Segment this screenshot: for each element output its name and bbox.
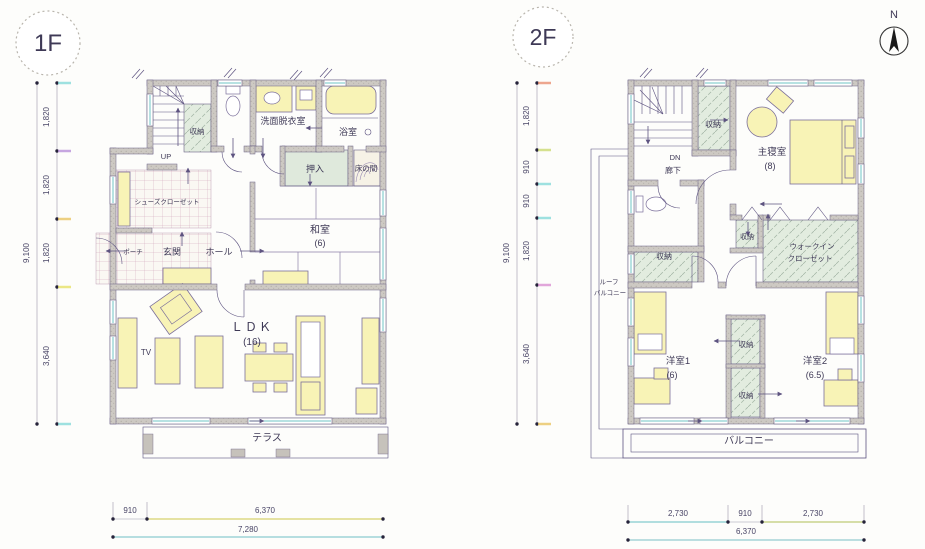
roof-balcony-2f	[591, 149, 628, 458]
room-label-storage-1f: 収納	[190, 126, 205, 136]
floor-plan-sheet: 1F	[0, 0, 925, 549]
kitchen-sink	[301, 322, 320, 377]
rug	[150, 284, 202, 335]
dim-bottom-seg-2f: 910	[738, 509, 752, 518]
master-bedroom-furniture-2f	[747, 87, 856, 184]
room-label-ldk-1f: ＬＤＫ	[231, 320, 273, 334]
desk	[634, 378, 670, 404]
dim-bottom-seg-1f: 910	[123, 506, 137, 515]
ldk-furniture-1f	[118, 284, 379, 415]
room-label-corridor-2f: 廊下	[665, 165, 681, 175]
chair	[838, 369, 852, 380]
tv-board	[118, 318, 137, 388]
room-label-ldk-size-1f: (16)	[243, 337, 261, 348]
round-table	[747, 107, 777, 137]
dim-bottom-total-2f: 6,370	[736, 527, 757, 536]
dim-left-seg-1f: 1,820	[42, 174, 51, 195]
room-label-tokonoma-1f: 床の間	[355, 163, 378, 173]
room-label-western2-size-2f: (6.5)	[806, 370, 825, 380]
room-label-porch-1f: ポーチ	[123, 248, 143, 256]
room-label-walkin-1-2f: ウォークイン	[790, 242, 835, 251]
room-label-stairs-dn-2f: DN	[670, 153, 681, 162]
stairs-1f	[153, 86, 184, 146]
room-label-washroom-1f: 洗面脱衣室	[260, 115, 305, 126]
brace-flags-2f	[640, 0, 925, 78]
kitchen-counter-seat	[301, 382, 320, 410]
dim-bottom-seg-1f: 6,370	[255, 506, 276, 515]
tatami-lines-1f	[255, 188, 380, 284]
room-label-western1-2f: 洋室1	[666, 355, 690, 367]
pillow	[830, 338, 854, 354]
room-label-master-2f: 主寝室	[758, 146, 787, 158]
room-label-walkin-2-2f: クローゼット	[788, 253, 833, 263]
floor-badge-1f-label: 1F	[34, 30, 62, 57]
kitchen-cabinet	[356, 388, 377, 414]
sofa-2	[195, 336, 223, 388]
dim-left-seg-2f: 1,820	[522, 240, 531, 261]
plan-1f: UP 収納 洗面脱衣室 浴室 押入 床の間 シューズクローゼット ポーチ 玄関 …	[96, 68, 388, 458]
room-label-washitsu-1f: 和室	[310, 223, 330, 236]
dim-left-total-1f: 9,100	[22, 242, 31, 263]
room-label-roof-balcony-2-2f: バルコニー	[594, 289, 626, 297]
dim-bottom-seg-2f: 2,730	[803, 509, 824, 518]
dim-left-seg-2f: 910	[522, 194, 531, 208]
stairs-2f	[634, 86, 692, 146]
pillow	[845, 156, 854, 178]
walkin-closet-2f	[763, 220, 858, 282]
chair	[274, 343, 287, 352]
dim-left-seg-1f: 1,820	[42, 242, 51, 263]
room-label-storage-left-2f: 収納	[656, 251, 672, 261]
floor-badge-2f: 2F	[513, 7, 573, 67]
dim-left-seg-2f: 910	[522, 160, 531, 174]
toilet-fixture-1f	[226, 86, 240, 116]
room-label-washitsu-size-1f: (6)	[315, 238, 326, 248]
entrance-step-1f	[163, 268, 211, 284]
storage-by-stairs-2f	[698, 86, 730, 150]
floor-plan-drawing: 1F	[0, 0, 925, 549]
floor-badge-2f-label: 2F	[530, 24, 557, 50]
dim-left-seg-1f: 1,820	[42, 106, 51, 127]
label-balcony-2f: バルコニー	[724, 435, 774, 447]
north-needle-icon	[889, 27, 899, 52]
folding-door-marks-2f	[742, 207, 828, 220]
room-label-western1-size-2f: (6)	[667, 370, 678, 380]
pillow	[845, 126, 854, 148]
dim-bottom-seg-2f: 2,730	[668, 509, 689, 518]
label-terrace-1f: テラス	[252, 432, 282, 444]
desk	[824, 380, 858, 406]
hall-cabinet-1f	[263, 271, 308, 285]
label-tv-1f: TV	[141, 348, 152, 357]
shoe-cabinet-1f	[118, 172, 130, 226]
north-compass: N	[880, 9, 908, 55]
room-label-storage-mid-upper-2f: 収納	[739, 339, 754, 349]
room-label-storage-stairs-2f: 収納	[705, 119, 721, 129]
room-label-master-size-2f: (8)	[765, 161, 776, 171]
dim-bottom-total-1f: 7,280	[238, 525, 259, 534]
western-room1-furniture-2f	[634, 292, 670, 404]
dim-left-seg-2f: 3,640	[522, 343, 531, 364]
western-room2-furniture-2f	[824, 292, 858, 406]
room-label-storage-mid-lower-2f: 収納	[739, 390, 754, 400]
room-label-western2-2f: 洋室2	[803, 355, 827, 367]
dim-left-seg-2f: 1,820	[522, 105, 531, 126]
wall-counter	[362, 318, 379, 384]
north-label: N	[890, 9, 898, 21]
dim-left-seg-1f: 3,640	[42, 345, 51, 366]
pillow	[638, 334, 662, 350]
floor-badge-1f: 1F	[16, 11, 80, 75]
brace-flags-1f	[132, 68, 332, 80]
chair	[274, 383, 287, 392]
dining-table	[245, 354, 293, 381]
room-label-oshiire-1f: 押入	[306, 163, 324, 174]
washing-machine-1f	[296, 86, 316, 110]
room-label-hall-1f: ホール	[205, 247, 232, 257]
room-label-roof-balcony-1-2f: ルーフ	[599, 278, 618, 286]
chair	[253, 383, 266, 392]
room-label-storage-master-2f: 収納	[740, 232, 754, 241]
room-label-entrance-1f: 玄関	[163, 246, 181, 257]
room-label-bath-1f: 浴室	[339, 126, 357, 137]
sofa-1	[155, 338, 180, 384]
washstand-1f	[256, 84, 292, 112]
room-label-stairs-up-1f: UP	[161, 152, 171, 161]
plan-2f: DN 廊下 収納 主寝室 (8) 収納 収納 ウォークイン クローゼット ルーフ…	[591, 0, 925, 458]
dim-left-total-2f: 9,100	[502, 242, 511, 263]
room-label-shoe-closet-1f: シューズクローゼット	[135, 197, 200, 206]
